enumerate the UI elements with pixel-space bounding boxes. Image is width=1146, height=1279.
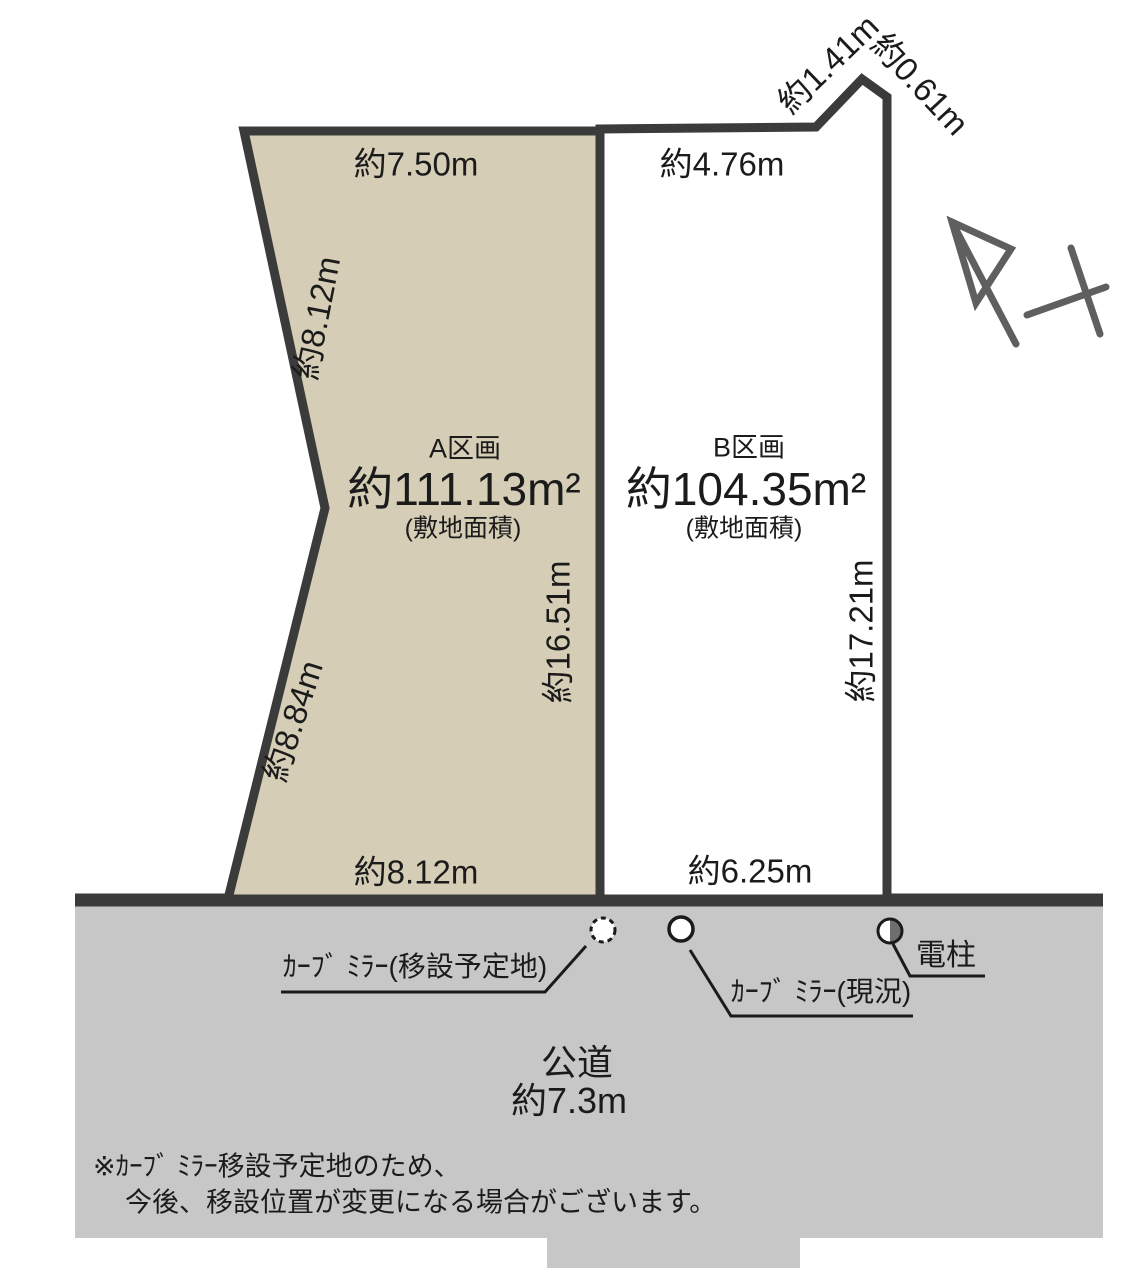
land-plot-diagram: 約7.50m 約4.76m 約1.41m 約0.61m 約8.12m 約8.84… — [0, 0, 1146, 1279]
parcel-a-area: 約111.13m² — [347, 466, 581, 512]
parcel-b-name: B区画 — [713, 435, 785, 462]
dim-a-top: 約7.50m — [354, 148, 479, 181]
mirror-current-label: ｶｰﾌﾞ ﾐﾗｰ(現況) — [731, 978, 911, 1006]
north-arrow-icon — [952, 222, 1106, 344]
road-surface-tab — [547, 1236, 800, 1268]
dim-a-bottom: 約8.12m — [354, 856, 479, 889]
parcel-a-area-caption: (敷地面積) — [405, 517, 522, 542]
utility-pole-marker — [878, 919, 902, 943]
dim-b-top: 約4.76m — [660, 148, 785, 181]
parcel-a-name: A区画 — [429, 436, 501, 463]
note-line2: 今後、移設位置が変更になる場合がございます。 — [125, 1190, 716, 1217]
dim-b-bottom: 約6.25m — [688, 855, 813, 888]
mirror-planned-marker — [591, 918, 615, 942]
mirror-current-marker — [669, 917, 693, 941]
road-name: 公道 — [541, 1045, 613, 1081]
note-line1: ※ｶｰﾌﾞ ﾐﾗｰ移設予定地のため、 — [93, 1154, 461, 1181]
utility-pole-label: 電柱 — [916, 941, 976, 971]
mirror-planned-label: ｶｰﾌﾞ ﾐﾗｰ(移設予定地) — [283, 953, 547, 981]
road-width: 約7.3m — [511, 1083, 627, 1119]
parcel-b-area: 約104.35m² — [626, 466, 866, 512]
parcel-b-area-caption: (敷地面積) — [686, 517, 803, 542]
dim-a-right: 約16.51m — [542, 560, 575, 703]
dim-b-right: 約17.21m — [845, 559, 878, 702]
